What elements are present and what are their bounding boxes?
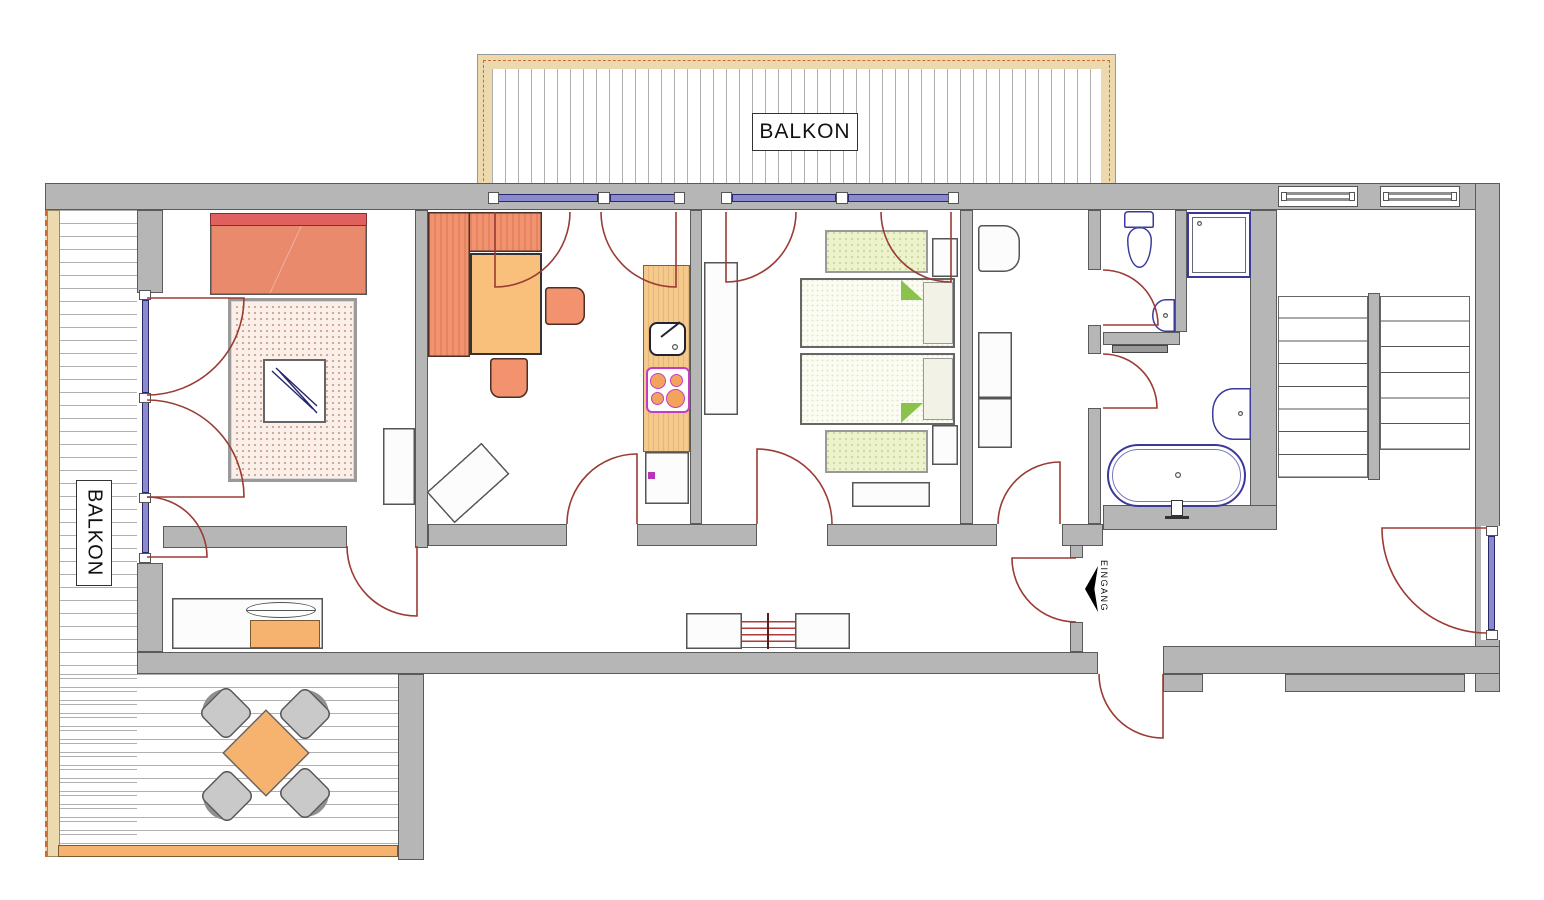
radiator-box-right bbox=[795, 613, 850, 649]
window-left-cap2 bbox=[139, 393, 151, 403]
window-glazing bbox=[1384, 192, 1456, 201]
shower-drain-dot bbox=[1197, 221, 1202, 226]
mattress-top bbox=[825, 230, 928, 273]
door-swing-living-entry bbox=[567, 454, 637, 524]
window-left-2 bbox=[142, 402, 149, 493]
wall-bedroom2-vestibule bbox=[960, 210, 973, 524]
window-stairwell-1 bbox=[1278, 186, 1358, 207]
wall-wc-shower-divider bbox=[1175, 210, 1187, 332]
door-swing-bedroom2-entry bbox=[757, 449, 832, 524]
toilet-tank bbox=[1124, 211, 1154, 228]
wall-stairs-divider bbox=[1368, 293, 1380, 480]
vestibule-shelf-1 bbox=[978, 332, 1012, 398]
chair-right bbox=[545, 287, 585, 325]
double-bed bbox=[210, 213, 367, 295]
blanket-fold-icon bbox=[901, 403, 923, 423]
wall-hallway-seg4 bbox=[827, 524, 997, 546]
window-top-living-1 bbox=[498, 194, 598, 202]
radiator-center-line bbox=[767, 613, 769, 649]
radiator-box-left bbox=[686, 613, 742, 649]
wardrobe bbox=[704, 262, 738, 415]
wall-bath-right bbox=[1250, 210, 1277, 530]
balcony-top: BALKON bbox=[478, 55, 1115, 186]
kitchen-sink bbox=[649, 322, 686, 356]
window-top-cap4 bbox=[721, 192, 732, 204]
window-cap bbox=[1451, 192, 1457, 201]
twin-bed-1 bbox=[800, 278, 955, 348]
wall-apartment-left-lower bbox=[137, 563, 163, 652]
bathtub-drain-dot bbox=[1175, 472, 1181, 478]
door-swing-building-entry bbox=[1099, 674, 1163, 738]
wall-bedroom1-living bbox=[415, 210, 428, 548]
bathtub-faucet-base bbox=[1165, 516, 1189, 519]
balcony-left-wood-rail bbox=[45, 210, 60, 857]
entrance-label: EINGANG bbox=[1099, 560, 1109, 624]
door-swing-hall-french-window bbox=[1382, 528, 1487, 633]
window-cap bbox=[1383, 192, 1389, 201]
burner-icon bbox=[670, 374, 683, 387]
window-glazing bbox=[1282, 192, 1354, 201]
wall-bottom-right-tab2 bbox=[1285, 674, 1465, 692]
balcony-top-label: BALKON bbox=[759, 120, 850, 144]
window-top-cap1 bbox=[488, 192, 499, 204]
drain-dot bbox=[672, 344, 678, 350]
window-left-3 bbox=[142, 502, 149, 553]
wall-vestibule-bath bbox=[1088, 408, 1101, 524]
chair-bottom bbox=[490, 358, 528, 398]
window-cap bbox=[1349, 192, 1355, 201]
window-top-cap6 bbox=[948, 192, 959, 204]
window-top-cap2 bbox=[598, 192, 610, 204]
vestibule-stool bbox=[978, 225, 1020, 272]
door-swing-bedroom1-entry bbox=[347, 546, 417, 616]
door-swing-apartment-entrance bbox=[1012, 558, 1076, 622]
burner-icon bbox=[666, 389, 685, 408]
bathtub-faucet bbox=[1171, 500, 1183, 516]
glass-table bbox=[263, 359, 326, 423]
living-chest-rotated bbox=[426, 443, 509, 524]
wall-wc-bottom bbox=[1103, 332, 1180, 345]
basin-dot bbox=[1238, 411, 1243, 416]
burner-icon bbox=[651, 392, 664, 405]
wall-bath-bottom bbox=[1103, 505, 1277, 530]
dresser bbox=[852, 482, 930, 507]
window-top-cap3 bbox=[674, 192, 685, 204]
wall-bottom-right bbox=[1163, 646, 1500, 674]
nightstand-bottom bbox=[932, 425, 958, 465]
balcony-left-label: BALKON bbox=[83, 489, 106, 576]
twin-bed-2 bbox=[800, 353, 955, 425]
window-top-bedroom2-1 bbox=[732, 194, 836, 202]
window-left-cap1 bbox=[139, 290, 151, 300]
wall-vestibule-wc-a bbox=[1088, 210, 1101, 270]
vestibule-shelf-2 bbox=[978, 398, 1012, 448]
door-swing-vestibule-entry bbox=[998, 462, 1060, 524]
wall-vestibule-wc-b bbox=[1088, 325, 1101, 354]
wall-hallway-seg5 bbox=[1062, 524, 1103, 546]
nightstand-top bbox=[932, 238, 958, 277]
window-top-cap5 bbox=[836, 192, 848, 204]
wall-bottom-main bbox=[137, 652, 1098, 674]
stairs-flight-left bbox=[1278, 296, 1368, 478]
balcony-left-label-box: BALKON bbox=[76, 480, 112, 586]
wall-hall-end-lower bbox=[1070, 622, 1083, 652]
towel-rail bbox=[1112, 345, 1168, 353]
basin-dot bbox=[1163, 313, 1168, 318]
wall-living-bedroom2 bbox=[690, 210, 702, 524]
entrance-arrow-icon bbox=[1085, 566, 1098, 612]
window-left-1 bbox=[142, 300, 149, 393]
wall-apartment-left-upper bbox=[137, 210, 163, 293]
wall-terrace-right bbox=[398, 674, 424, 860]
floor-plan: BALKON BALKON bbox=[0, 0, 1544, 900]
door-swing-wc bbox=[1103, 270, 1158, 325]
toilet-bowl bbox=[1127, 227, 1152, 268]
dining-table bbox=[470, 253, 542, 355]
outlet-marker bbox=[648, 472, 655, 479]
bathtub bbox=[1107, 444, 1246, 507]
balcony-top-label-box: BALKON bbox=[752, 113, 858, 151]
burner-icon bbox=[650, 373, 666, 389]
stairs-flight-right bbox=[1380, 296, 1470, 450]
window-right bbox=[1488, 536, 1495, 630]
wall-hallway-seg2 bbox=[428, 524, 567, 546]
bed-pillow bbox=[923, 282, 953, 344]
decor-dish bbox=[246, 602, 316, 618]
terrace-wood-rail bbox=[58, 845, 398, 857]
window-right-cap2 bbox=[1486, 630, 1498, 640]
sideboard-drawer bbox=[250, 620, 320, 648]
window-right-cap1 bbox=[1486, 526, 1498, 536]
window-stairwell-2 bbox=[1380, 186, 1460, 207]
shower bbox=[1187, 212, 1251, 278]
glass-table-reflection bbox=[263, 359, 326, 423]
wall-hallway-seg3 bbox=[637, 524, 757, 546]
bed-pillow bbox=[923, 358, 953, 420]
blanket-fold-icon bbox=[901, 280, 923, 300]
mattress-bottom bbox=[825, 430, 928, 473]
bedroom1-cabinet bbox=[383, 428, 415, 505]
window-top-living-2 bbox=[610, 194, 675, 202]
bath-washbasin bbox=[1212, 388, 1251, 440]
wall-hallway-seg1 bbox=[163, 526, 347, 548]
wall-bottom-right-tab1 bbox=[1163, 674, 1203, 692]
kitchen-counter bbox=[643, 265, 690, 452]
window-left-cap3 bbox=[139, 493, 151, 503]
corner-bench-left bbox=[428, 212, 470, 357]
window-top-bedroom2-2 bbox=[848, 194, 950, 202]
bed-pillow-strip bbox=[210, 213, 367, 226]
door-swing-bathroom bbox=[1103, 354, 1157, 408]
window-left-cap4 bbox=[139, 553, 151, 563]
window-cap bbox=[1281, 192, 1287, 201]
